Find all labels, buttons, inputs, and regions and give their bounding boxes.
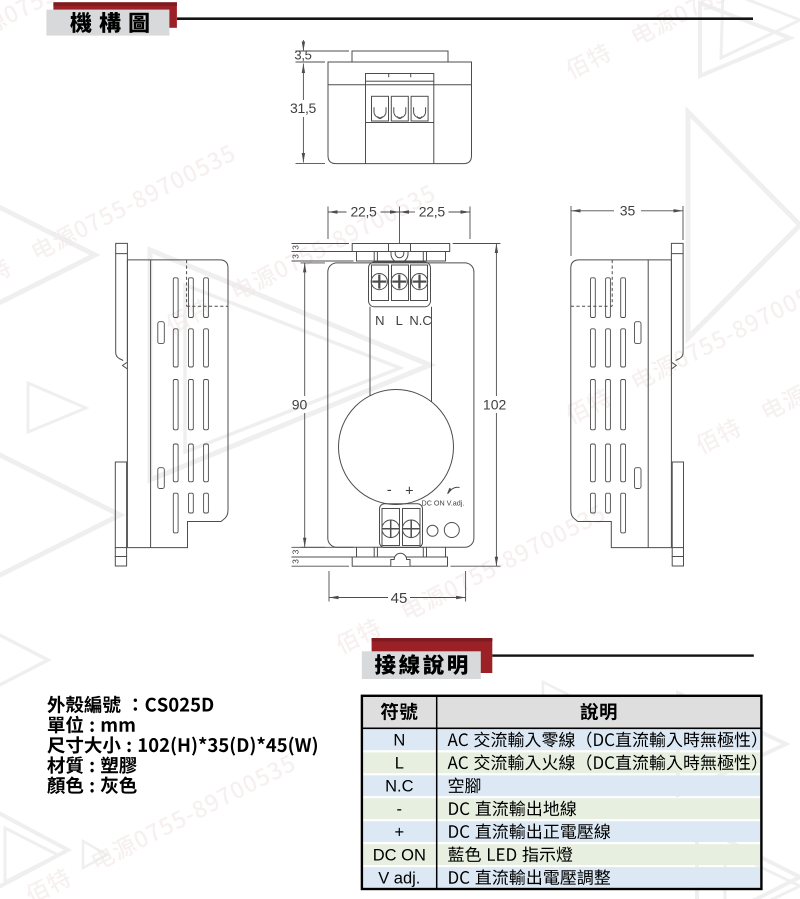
svg-text:35: 35 — [620, 202, 636, 218]
svg-text:DC ON V.adj.: DC ON V.adj. — [422, 499, 465, 508]
svg-text:22,5: 22,5 — [350, 204, 377, 220]
svg-text:-: - — [387, 483, 392, 499]
svg-text:L: L — [395, 755, 404, 773]
svg-text:N.C: N.C — [409, 313, 431, 328]
svg-text:22,5: 22,5 — [419, 204, 446, 220]
svg-text:102: 102 — [483, 397, 507, 413]
svg-text:L: L — [396, 313, 403, 328]
svg-text:31,5: 31,5 — [290, 100, 317, 116]
svg-text:N.C: N.C — [385, 778, 414, 796]
svg-text:3: 3 — [291, 559, 301, 564]
svg-text:+: + — [394, 823, 404, 841]
svg-text:+: + — [405, 484, 413, 500]
svg-text:-: - — [397, 800, 403, 818]
svg-text:3: 3 — [291, 254, 301, 259]
svg-text:45: 45 — [391, 590, 408, 607]
svg-text:DC ON: DC ON — [373, 846, 426, 864]
svg-text:N: N — [393, 732, 405, 750]
svg-text:3: 3 — [291, 549, 301, 554]
svg-text:N: N — [375, 313, 384, 328]
svg-text:3,5: 3,5 — [294, 48, 311, 63]
svg-text:V adj.: V adj. — [378, 869, 420, 887]
svg-text:90: 90 — [292, 397, 308, 413]
svg-text:3: 3 — [291, 245, 301, 250]
